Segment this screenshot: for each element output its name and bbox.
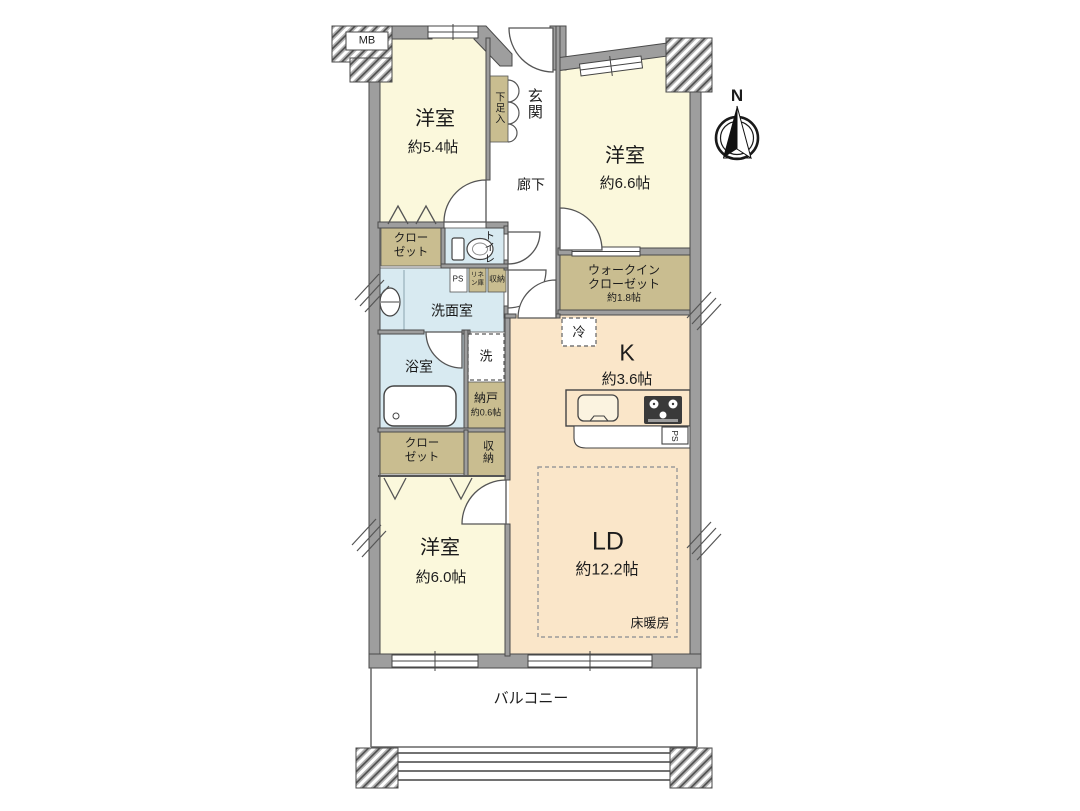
bathtub-icon xyxy=(384,386,456,426)
shoe-cabinet-doors xyxy=(508,80,519,142)
balcony-railing xyxy=(356,748,712,788)
floorplan-drawing xyxy=(0,0,1080,811)
toilet-icon xyxy=(452,238,493,260)
floorplan-page: MB 洋室 約5.4帖 下足入 玄関 廊下 洋室 約6.6帖 クローゼット トイ… xyxy=(0,0,1080,811)
balcony-outline xyxy=(371,668,697,747)
mb-box xyxy=(346,32,388,50)
compass-icon xyxy=(716,106,758,159)
room-fills xyxy=(378,38,690,656)
